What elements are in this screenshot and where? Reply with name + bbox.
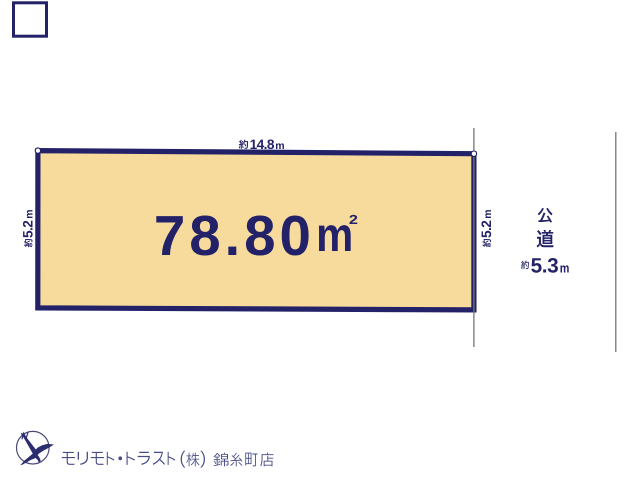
svg-text:2: 2 xyxy=(349,212,358,227)
svg-text:m: m xyxy=(24,209,36,218)
svg-text:5.2: 5.2 xyxy=(479,220,494,238)
svg-text:m: m xyxy=(482,209,494,218)
svg-text:5.2: 5.2 xyxy=(21,220,36,238)
svg-text:m: m xyxy=(316,209,353,262)
svg-text:14.8: 14.8 xyxy=(250,137,275,152)
svg-text:78.80: 78.80 xyxy=(154,204,315,267)
svg-text:m: m xyxy=(275,140,284,152)
svg-text:5.3: 5.3 xyxy=(531,254,559,277)
svg-text:m: m xyxy=(560,260,570,275)
